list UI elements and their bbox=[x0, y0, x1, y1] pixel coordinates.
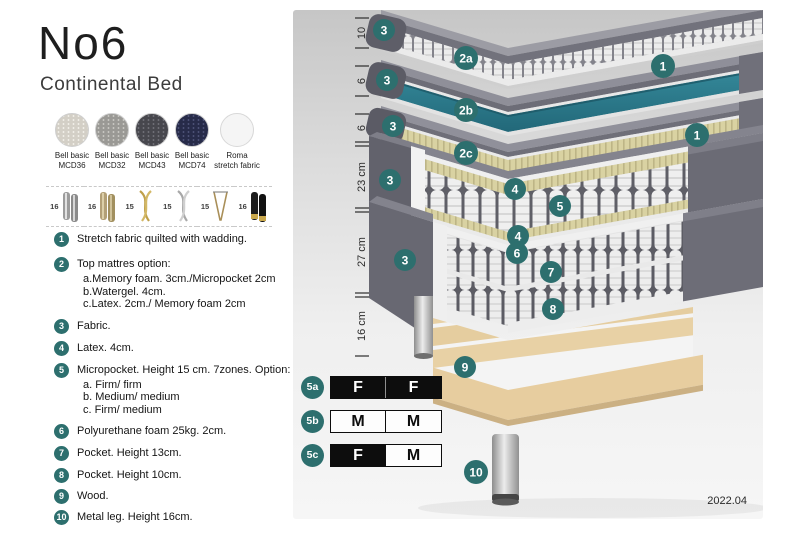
leg-height: 16 bbox=[88, 202, 96, 211]
feature-text: Top mattres option: bbox=[77, 257, 171, 271]
fabric-name: Bell basic bbox=[175, 151, 209, 160]
fabric-swatch-icon bbox=[95, 113, 129, 147]
firmness-cell: M bbox=[386, 411, 441, 432]
callout-5: 5 bbox=[549, 195, 571, 217]
feature-item: 7 Pocket. Height 13cm. bbox=[54, 446, 292, 461]
svg-text:9: 9 bbox=[462, 361, 469, 375]
feature-item: 3 Fabric. bbox=[54, 319, 292, 334]
feature-item: 9 Wood. bbox=[54, 489, 292, 504]
fabric-swatch-icon bbox=[175, 113, 209, 147]
firmness-row: 5a F F bbox=[301, 376, 442, 399]
callout-4: 4 bbox=[504, 178, 526, 200]
feature-subitem: c. Firm/ medium bbox=[83, 404, 292, 417]
firmness-option-badge: 5b bbox=[301, 410, 324, 433]
fabric-swatch: Bell basicMCD74 bbox=[172, 113, 212, 170]
fabric-name: Bell basic bbox=[55, 151, 89, 160]
callout-7: 7 bbox=[540, 261, 562, 283]
feature-text: Polyurethane foam 25kg. 2cm. bbox=[77, 424, 226, 438]
leg-option: 16 bbox=[234, 186, 272, 227]
firmness-cell: M bbox=[331, 411, 386, 432]
callout-3: 3 bbox=[379, 169, 401, 191]
feature-text: Stretch fabric quilted with wadding. bbox=[77, 232, 247, 246]
feature-item: 10 Metal leg. Height 16cm. bbox=[54, 510, 292, 525]
feature-text: Pocket. Height 10cm. bbox=[77, 468, 182, 482]
feature-item: 2 Top mattres option: a.Memory foam. 3cm… bbox=[54, 257, 292, 311]
fabric-swatch-icon bbox=[220, 113, 254, 147]
feature-number-badge: 8 bbox=[54, 468, 69, 483]
feature-subitem: a.Memory foam. 3cm./Micropocket 2cm bbox=[83, 273, 292, 286]
svg-text:6: 6 bbox=[514, 247, 521, 261]
svg-text:5: 5 bbox=[557, 200, 564, 214]
fabric-code: MCD43 bbox=[138, 161, 165, 170]
cylinder-wood-leg-icon bbox=[98, 189, 117, 223]
feature-number-badge: 10 bbox=[54, 510, 69, 525]
dimension-label: 27 cm bbox=[356, 237, 368, 267]
fabric-name: Bell basic bbox=[95, 151, 129, 160]
firmness-cell: F bbox=[331, 377, 386, 398]
feature-item: 6 Polyurethane foam 25kg. 2cm. bbox=[54, 424, 292, 439]
svg-text:10: 10 bbox=[469, 466, 483, 480]
feature-number-badge: 3 bbox=[54, 319, 69, 334]
feature-subitem: b.Watergel. 4cm. bbox=[83, 286, 292, 299]
feature-number-badge: 4 bbox=[54, 341, 69, 356]
leg-option: 15 bbox=[197, 186, 235, 227]
fabric-swatch: Bell basicMCD43 bbox=[132, 113, 172, 170]
leg-option: 15 bbox=[159, 186, 197, 227]
leg-height: 15 bbox=[126, 202, 134, 211]
feature-text: Micropocket. Height 15 cm. 7zones. Optio… bbox=[77, 363, 290, 377]
cylinder-black-gold-leg-icon bbox=[249, 189, 268, 223]
dimension-label: 10 bbox=[356, 27, 368, 39]
exploded-bed-diagram: 10 6 6 23 cm 27 cm 16 cm 3 2a 1 3 2b 3 2… bbox=[293, 10, 763, 519]
callout-3: 3 bbox=[373, 19, 395, 41]
feature-text: Fabric. bbox=[77, 319, 111, 333]
svg-text:4: 4 bbox=[515, 230, 522, 244]
fabric-code: stretch fabric bbox=[214, 161, 260, 170]
feature-subitem: c.Latex. 2cm./ Memory foam 2cm bbox=[83, 298, 292, 311]
fabric-swatch-icon bbox=[135, 113, 169, 147]
firmness-option-badge: 5a bbox=[301, 376, 324, 399]
twist-silver-leg-icon bbox=[174, 189, 193, 223]
leg-options: 16 16 15 15 bbox=[46, 186, 272, 227]
callout-1: 1 bbox=[651, 54, 675, 78]
leg-option: 15 bbox=[121, 186, 159, 227]
callout-10: 10 bbox=[464, 460, 488, 484]
dimension-label: 6 bbox=[356, 78, 368, 84]
feature-text: Pocket. Height 13cm. bbox=[77, 446, 182, 460]
leg-height: 16 bbox=[50, 202, 58, 211]
feature-item: 8 Pocket. Height 10cm. bbox=[54, 468, 292, 483]
firmness-cell: M bbox=[386, 445, 441, 466]
firmness-cell: F bbox=[386, 377, 441, 398]
fabric-code: MCD36 bbox=[58, 161, 85, 170]
callout-2c: 2c bbox=[454, 141, 478, 165]
firmness-cell: F bbox=[331, 445, 386, 466]
feature-subitem: b. Medium/ medium bbox=[83, 391, 292, 404]
dimension-label: 16 cm bbox=[356, 311, 368, 341]
firmness-table: 5a F F 5b M M 5c F M bbox=[301, 376, 442, 478]
svg-text:3: 3 bbox=[384, 74, 391, 88]
feature-item: 1 Stretch fabric quilted with wadding. bbox=[54, 232, 292, 247]
metal-leg-front bbox=[492, 434, 519, 506]
fabric-code: MCD32 bbox=[98, 161, 125, 170]
leg-option: 16 bbox=[46, 186, 84, 227]
callout-9: 9 bbox=[454, 356, 476, 378]
leg-height: 15 bbox=[163, 202, 171, 211]
metal-leg-back bbox=[414, 296, 433, 359]
feature-text: Latex. 4cm. bbox=[77, 341, 134, 355]
fabric-swatch-icon bbox=[55, 113, 89, 147]
spec-column: No6 Continental Bed Bell basicMCD36 Bell… bbox=[0, 0, 293, 533]
svg-text:2c: 2c bbox=[459, 147, 473, 161]
svg-text:1: 1 bbox=[694, 129, 701, 143]
feature-number-badge: 2 bbox=[54, 257, 69, 272]
hairpin-leg-icon bbox=[211, 189, 230, 223]
feature-list: 1 Stretch fabric quilted with wadding. 2… bbox=[54, 232, 292, 525]
product-subtitle: Continental Bed bbox=[40, 74, 183, 96]
svg-text:8: 8 bbox=[550, 303, 557, 317]
svg-text:3: 3 bbox=[390, 120, 397, 134]
callout-3: 3 bbox=[382, 115, 404, 137]
feature-text: Wood. bbox=[77, 489, 109, 503]
callout-3: 3 bbox=[376, 69, 398, 91]
feature-item: 4 Latex. 4cm. bbox=[54, 341, 292, 356]
fabric-name: Bell basic bbox=[135, 151, 169, 160]
page: No6 Continental Bed Bell basicMCD36 Bell… bbox=[0, 0, 800, 533]
fabric-swatch: Bell basicMCD36 bbox=[52, 113, 92, 170]
version-stamp: 2022.04 bbox=[707, 495, 747, 507]
svg-text:3: 3 bbox=[387, 174, 394, 188]
callout-8: 8 bbox=[542, 298, 564, 320]
fabric-code: MCD74 bbox=[178, 161, 205, 170]
svg-text:7: 7 bbox=[548, 266, 555, 280]
callout-6: 6 bbox=[506, 242, 528, 264]
leg-option: 16 bbox=[84, 186, 122, 227]
svg-text:2b: 2b bbox=[459, 104, 473, 118]
fabric-swatch: Romastretch fabric bbox=[212, 113, 262, 170]
feature-number-badge: 9 bbox=[54, 489, 69, 504]
callout-3: 3 bbox=[394, 249, 416, 271]
svg-text:4: 4 bbox=[512, 183, 519, 197]
feature-number-badge: 6 bbox=[54, 424, 69, 439]
firmness-row: 5b M M bbox=[301, 410, 442, 433]
cylinder-silver-leg-icon bbox=[61, 189, 80, 223]
firmness-row: 5c F M bbox=[301, 444, 442, 467]
firmness-option-badge: 5c bbox=[301, 444, 324, 467]
feature-number-badge: 1 bbox=[54, 232, 69, 247]
leg-height: 15 bbox=[201, 202, 209, 211]
callout-2b: 2b bbox=[454, 98, 478, 122]
leg-height: 16 bbox=[239, 202, 247, 211]
svg-text:2a: 2a bbox=[459, 52, 473, 66]
fabric-name: Roma bbox=[226, 151, 247, 160]
feature-number-badge: 7 bbox=[54, 446, 69, 461]
feature-item: 5 Micropocket. Height 15 cm. 7zones. Opt… bbox=[54, 363, 292, 417]
callout-2a: 2a bbox=[454, 46, 478, 70]
svg-text:1: 1 bbox=[660, 60, 667, 74]
dimension-label: 6 bbox=[356, 125, 368, 131]
dimension-label: 23 cm bbox=[356, 162, 368, 192]
svg-text:3: 3 bbox=[402, 254, 409, 268]
svg-text:3: 3 bbox=[381, 24, 388, 38]
product-title: No6 bbox=[38, 16, 128, 70]
callout-1: 1 bbox=[685, 123, 709, 147]
twist-gold-leg-icon bbox=[136, 189, 155, 223]
feature-number-badge: 5 bbox=[54, 363, 69, 378]
fabric-swatches: Bell basicMCD36 Bell basicMCD32 Bell bas… bbox=[52, 113, 262, 170]
feature-subitem: a. Firm/ firm bbox=[83, 379, 292, 392]
fabric-swatch: Bell basicMCD32 bbox=[92, 113, 132, 170]
feature-text: Metal leg. Height 16cm. bbox=[77, 510, 193, 524]
